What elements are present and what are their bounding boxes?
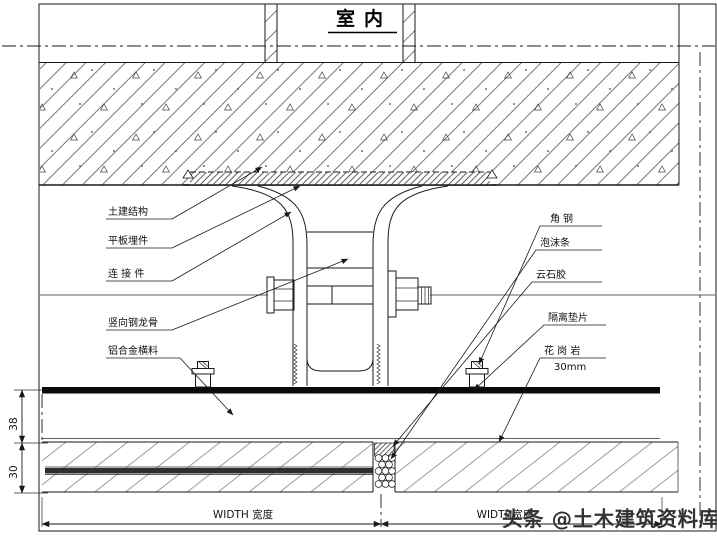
bolt-washer-left xyxy=(267,277,274,313)
channel-bottom-cup xyxy=(307,352,373,371)
bolt-shank xyxy=(307,286,373,304)
right-annotations: 角钢 泡沫条 云石胶 隔离垫片 花 岗 岩 30mm xyxy=(391,212,606,459)
aluminum-rail xyxy=(42,387,660,394)
dim-30: 30 xyxy=(8,465,20,478)
concrete-slab xyxy=(39,4,679,185)
label-granite-thickness: 30mm xyxy=(554,362,586,373)
bolt-washer-right xyxy=(388,271,396,317)
embedded-plate xyxy=(183,170,497,185)
label-connector: 连 接 件 xyxy=(108,267,144,280)
serration-right xyxy=(377,344,380,384)
label-granite: 花 岗 岩 xyxy=(544,344,580,357)
title-block: 室内 xyxy=(328,7,397,33)
page-title: 室内 xyxy=(336,7,392,30)
stone-panel-left xyxy=(42,442,373,492)
dim-38: 38 xyxy=(8,417,20,430)
rail-fixture-right xyxy=(466,362,488,388)
panel-joint xyxy=(375,443,396,527)
marble-glue-sealant xyxy=(375,443,395,456)
drawing-page: { "title": "室内", "drawing": { "labels_le… xyxy=(0,0,717,539)
serration-left xyxy=(294,344,297,384)
label-marble-glue: 云石胶 xyxy=(536,268,566,281)
watermark: 头条 @土木建筑资料库 xyxy=(502,502,717,532)
label-angle-steel: 角钢 xyxy=(550,212,576,225)
detail-drawing-svg: 38 30 WIDTH 宽度 WIDTH宽度 土建结构 平板埋件 连 接 件 竖… xyxy=(0,0,717,539)
foam-backer-rod xyxy=(375,455,395,488)
label-embed-plate: 平板埋件 xyxy=(108,234,148,247)
bolt-nut xyxy=(396,278,418,310)
label-vertical-steel-keel: 竖向钢龙骨 xyxy=(108,316,158,329)
label-civil-structure: 土建结构 xyxy=(108,205,148,218)
label-isolation-gasket: 隔离垫片 xyxy=(548,311,588,324)
dim-width-left: WIDTH 宽度 xyxy=(213,508,274,521)
left-annotations: 土建结构 平板埋件 连 接 件 竖向钢龙骨 铝合金横料 xyxy=(106,167,348,415)
stone-panel-right xyxy=(395,442,678,492)
label-foam-rod: 泡沫条 xyxy=(540,236,570,249)
bolt-thread-stub xyxy=(418,287,431,304)
label-aluminum-rail: 铝合金横料 xyxy=(108,344,158,357)
through-bolt xyxy=(267,271,431,317)
